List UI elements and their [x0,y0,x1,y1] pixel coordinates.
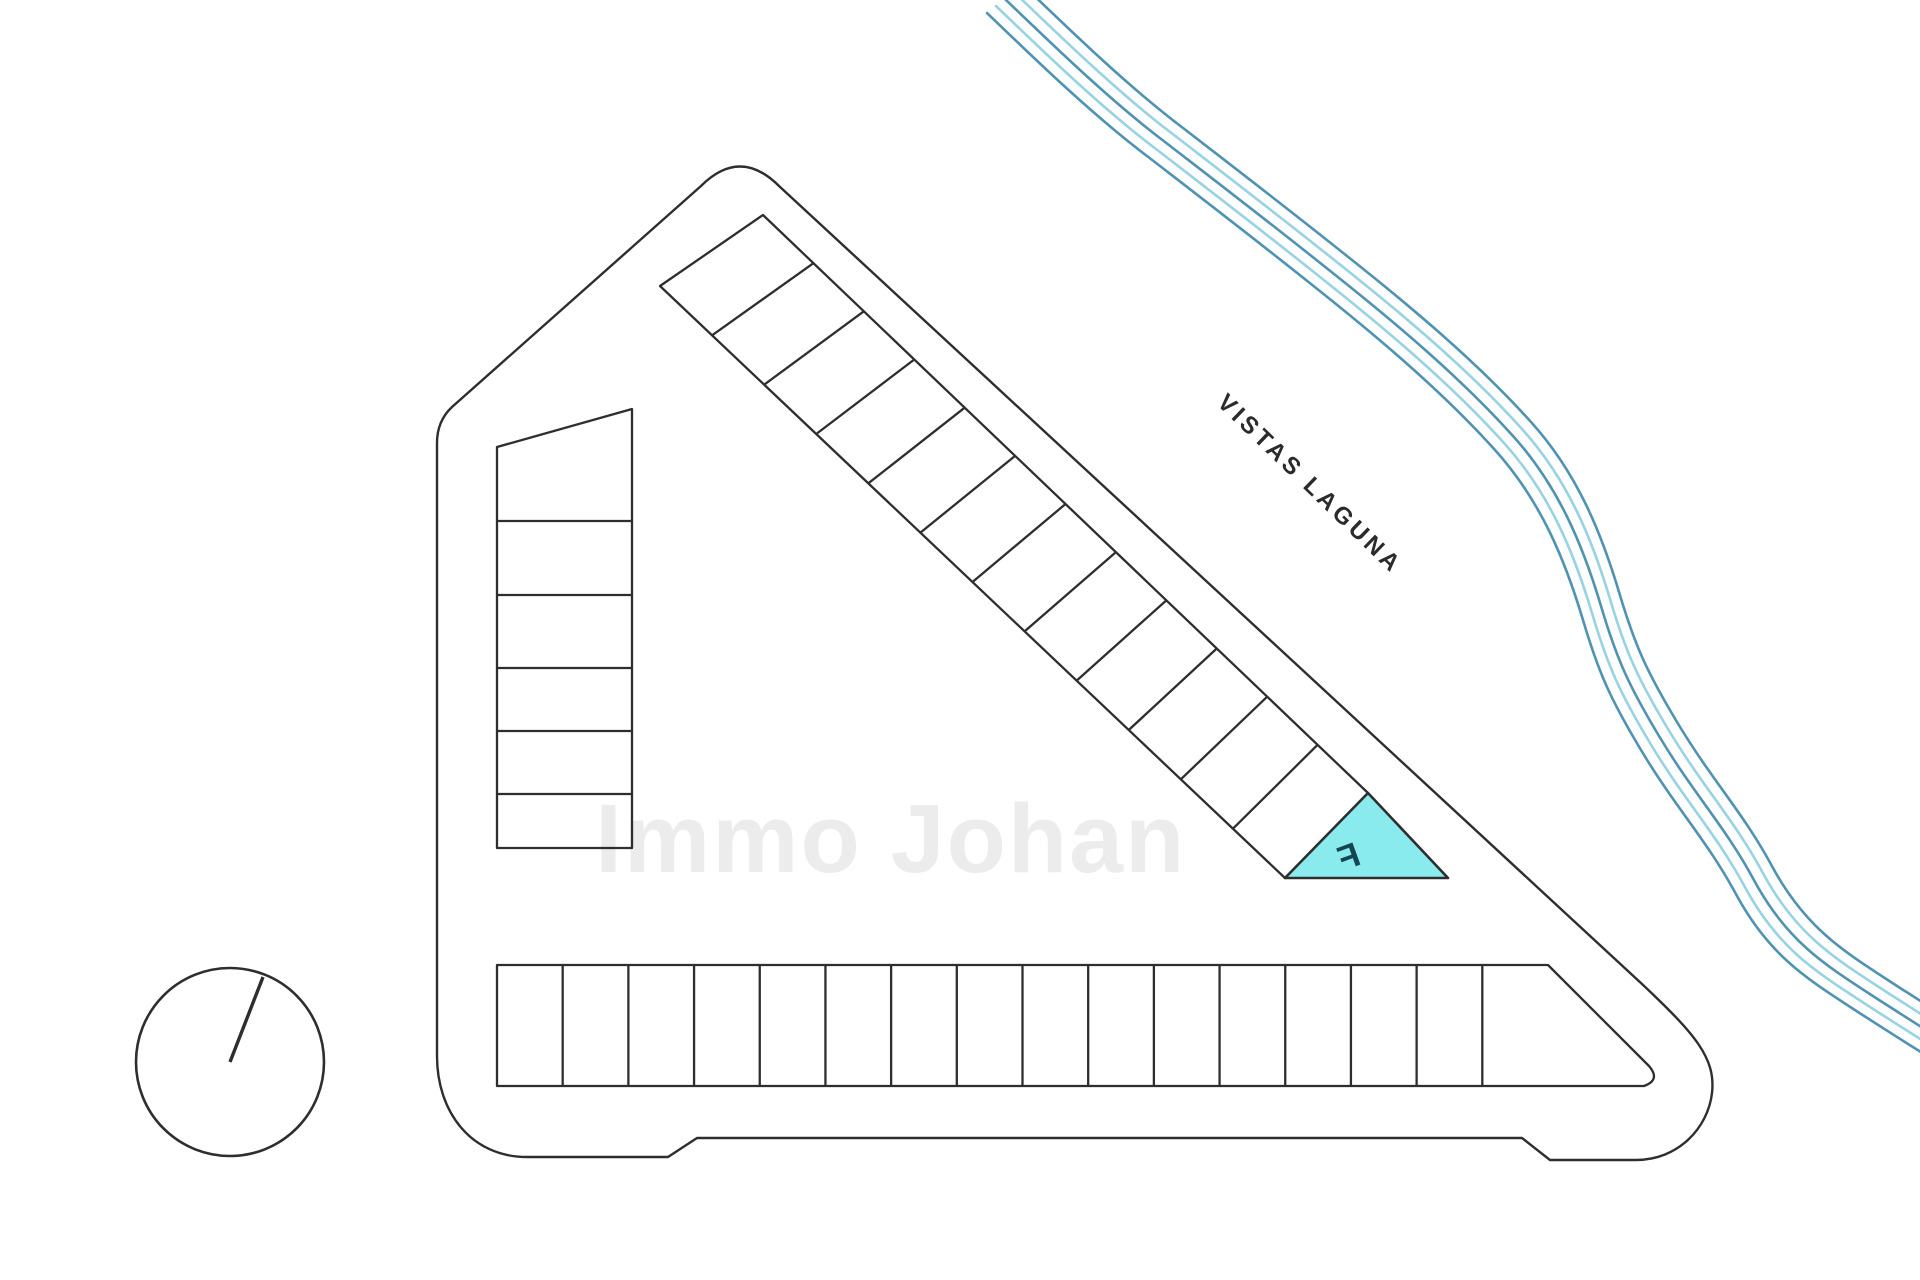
river [987,0,1920,1060]
plot-divider [1129,649,1217,731]
street-label: VISTAS LAGUNA [1212,389,1408,579]
diagonal-row-dividers [712,263,1318,829]
plot-divider [1233,745,1318,829]
roundabout-tick [230,977,263,1062]
watermark-text: Immo Johan [595,784,1186,893]
site-plan-image: Immo Johan VISTAS LAGUNA F [0,0,1920,1280]
bottom-row-dividers [563,965,1483,1086]
plot-divider [1025,552,1116,631]
plot-divider [973,504,1066,582]
left-column-dividers [497,521,632,794]
river-line [996,6,1920,1053]
left-plot-column [497,409,632,848]
plot-divider [920,456,1015,533]
plot-divider [816,360,914,435]
highlighted-plot-f[interactable] [1285,793,1448,878]
plot-divider [1181,697,1267,780]
bottom-plot-row [497,965,1654,1086]
plot-divider [1077,600,1167,680]
plot-divider [712,263,813,335]
plot-divider [868,408,964,484]
site-plan-canvas: Immo Johan VISTAS LAGUNA F [0,0,1920,1280]
plot-divider [764,311,864,384]
